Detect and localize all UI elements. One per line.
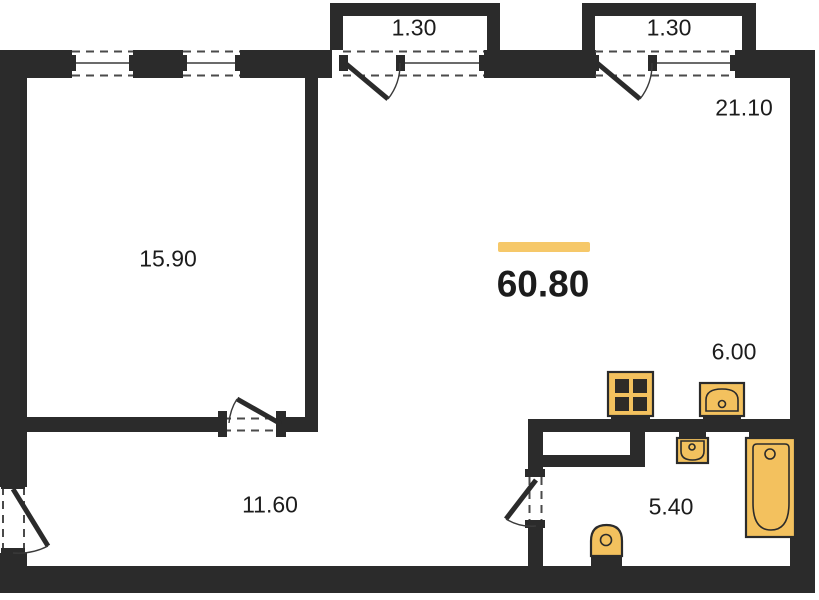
hallway-area-label: 11.60 bbox=[242, 494, 298, 517]
door-icon bbox=[506, 469, 545, 528]
kitchen-sink-icon bbox=[700, 383, 744, 421]
door-icon bbox=[218, 399, 286, 437]
bathtub-icon bbox=[746, 432, 795, 537]
bedroom-area-label: 15.90 bbox=[139, 248, 197, 271]
floor-plan: 15.90 21.10 11.60 6.00 5.40 1.30 1.30 60… bbox=[0, 0, 819, 600]
plan-linework bbox=[0, 0, 819, 600]
balcony-door-window-icon bbox=[339, 52, 488, 100]
wash-basin-icon bbox=[677, 432, 708, 463]
kitchen-zone-area-label: 6.00 bbox=[712, 341, 757, 364]
window-icon bbox=[67, 52, 138, 76]
total-area-label: 60.80 bbox=[497, 266, 590, 303]
stove-icon bbox=[608, 372, 653, 421]
bathroom-area-label: 5.40 bbox=[649, 496, 694, 519]
balcony-left-area-label: 1.30 bbox=[392, 17, 437, 40]
balcony-door-window-icon bbox=[590, 52, 739, 100]
balcony-right-area-label: 1.30 bbox=[647, 17, 692, 40]
entrance-door-icon bbox=[1, 481, 48, 556]
total-area-bar bbox=[498, 242, 590, 252]
toilet-icon bbox=[591, 525, 622, 568]
window-icon bbox=[178, 52, 244, 76]
living-kitchen-area-label: 21.10 bbox=[715, 97, 773, 120]
